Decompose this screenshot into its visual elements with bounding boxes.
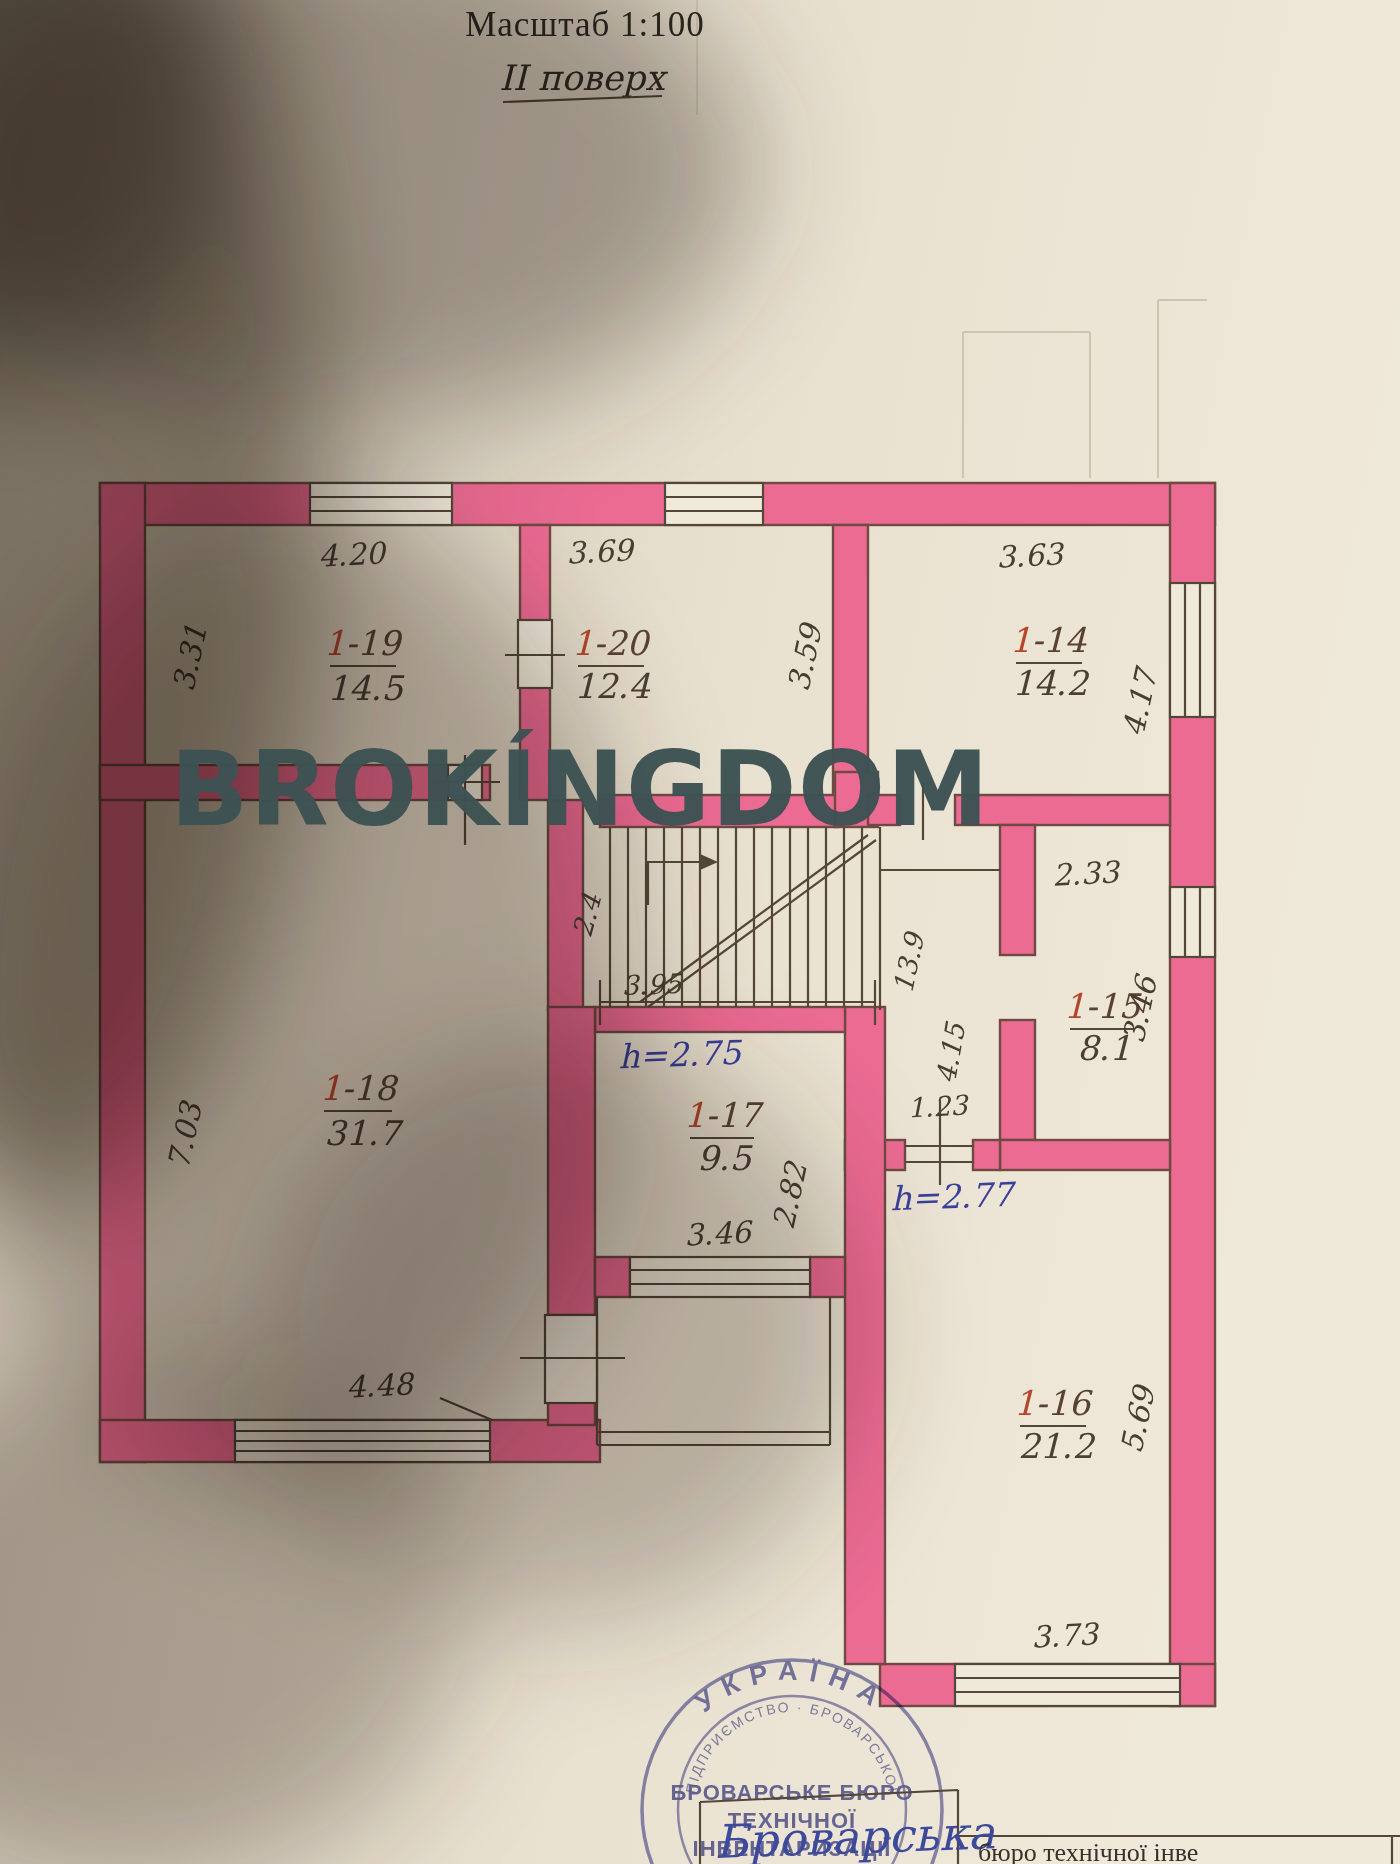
room-number-1-20: 1-20 [572,623,651,663]
room-area-1-14: 14.2 [1012,663,1090,703]
dim-r16-bottom: 3.73 [1030,1616,1100,1655]
room-area-1-20: 12.4 [574,666,651,706]
room-area-1-16: 21.2 [1018,1426,1096,1466]
dim-r15-top: 2.33 [1051,854,1121,893]
scanned-floor-plan-photo: 1-19 14.5 1-20 12.4 1-14 14.2 1-15 8.1 1… [0,0,1400,1864]
height-note-right: h=2.77 [890,1175,1018,1218]
footer-printed-text: бюро технічної інве [978,1838,1198,1864]
room-number-1-16: 1-16 [1014,1383,1094,1423]
dim-door-width: 1.23 [907,1089,970,1123]
dim-r20-top: 3.69 [565,532,636,571]
dim-r14-top: 3.63 [995,536,1065,575]
handwritten-city-name: Броварська [713,1805,996,1864]
room-number-1-14: 1-14 [1010,620,1088,660]
watermark-text: BROKÍNGDOM [170,729,990,849]
